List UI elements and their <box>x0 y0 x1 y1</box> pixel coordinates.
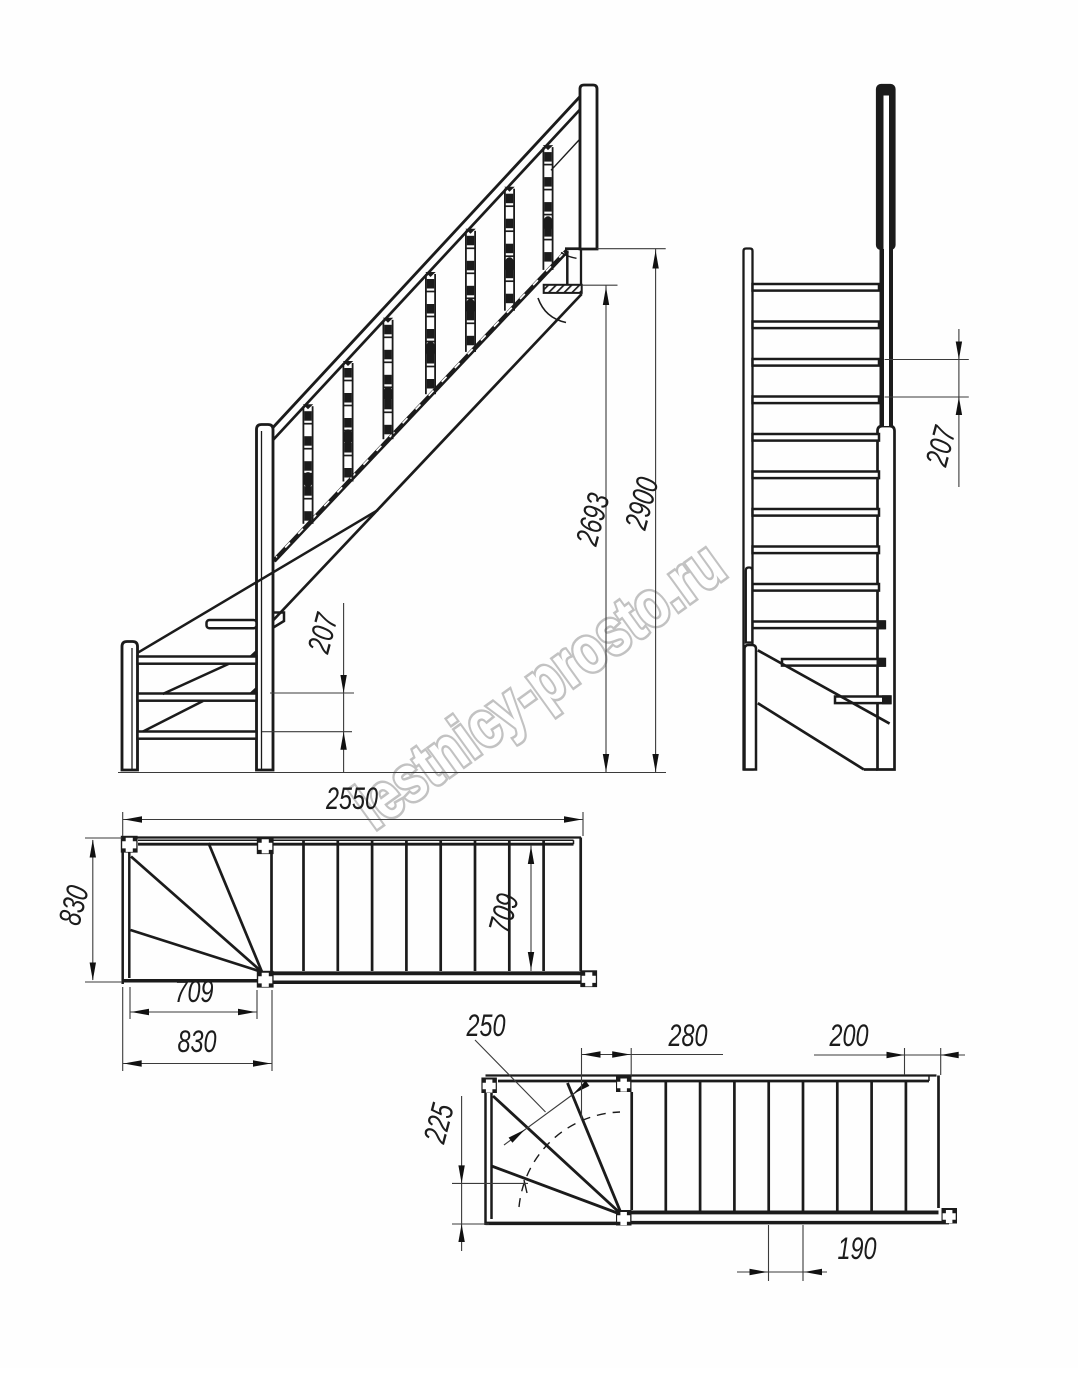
svg-text:250: 250 <box>466 1007 506 1043</box>
svg-text:830: 830 <box>178 1023 217 1059</box>
svg-text:200: 200 <box>829 1017 869 1053</box>
svg-text:2550: 2550 <box>325 780 378 816</box>
svg-text:280: 280 <box>668 1017 708 1053</box>
svg-text:709: 709 <box>175 973 214 1009</box>
svg-text:190: 190 <box>838 1230 877 1266</box>
